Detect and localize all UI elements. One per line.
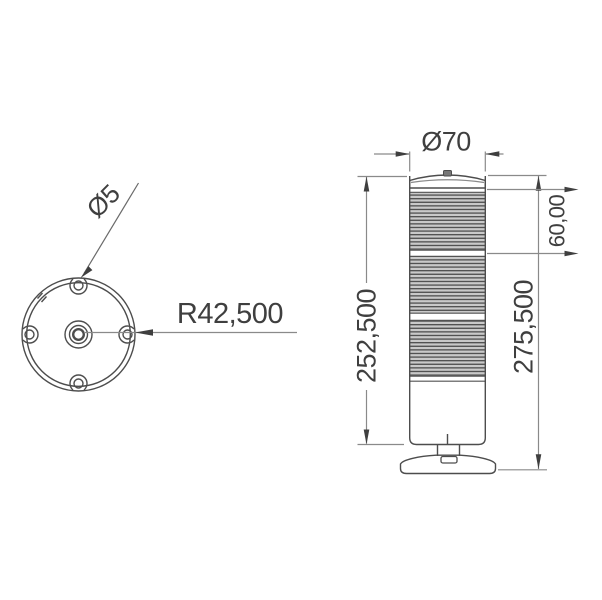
mounting-hole-bottom [70, 375, 87, 390]
dimension-arrow [485, 151, 499, 157]
dim-total-height: 275,500 [488, 176, 547, 470]
lens-segment-1 [410, 193, 486, 251]
flange-inner-circle [27, 283, 131, 387]
technical-drawing-canvas: Ø5 R42,500 [0, 0, 602, 600]
dim-mount-radius: R42,500 [84, 298, 297, 336]
dim-body-height: 252,500 [351, 177, 407, 445]
radius-arrow [135, 329, 153, 335]
lens-segment-2 [410, 257, 486, 314]
dim-diameter-70: Ø70 [374, 126, 504, 171]
dimension-arrow [565, 251, 579, 257]
dimension-arrow [364, 430, 370, 445]
hub-circle-inner [73, 329, 84, 340]
dimension-arrow [536, 176, 542, 191]
tower-stem [438, 445, 460, 457]
mounting-hole-top [70, 279, 87, 294]
base-tab [441, 457, 457, 464]
flange-outer-circle [22, 278, 135, 391]
front-view: Ø70 252,500 275,500 60,00 [351, 126, 578, 473]
total-height-label: 275,500 [508, 280, 538, 374]
dimension-arrow [536, 454, 542, 469]
module-height-label: 60,00 [545, 194, 570, 247]
dimension-arrow [396, 151, 410, 157]
top-view: Ø5 R42,500 [22, 179, 297, 391]
lens-segment-3 [410, 321, 486, 377]
hole-diameter-label: Ø5 [81, 179, 126, 224]
leader-arrow [81, 266, 93, 278]
mount-radius-label: R42,500 [177, 298, 283, 330]
cap-inner-line [411, 180, 484, 183]
body-height-label: 252,500 [351, 289, 381, 383]
center-hub [65, 321, 92, 348]
diameter-label: Ø70 [421, 126, 471, 156]
cap-nub [444, 171, 452, 177]
mounting-hole-right [119, 326, 134, 343]
dim-module-height: 60,00 [487, 187, 579, 257]
dim-hole-diameter: Ø5 [81, 179, 139, 278]
dimension-arrow [565, 187, 579, 193]
mounting-hole-left [23, 326, 38, 343]
dimension-arrow [364, 177, 370, 192]
signal-tower-drawing: Ø5 R42,500 [0, 0, 602, 600]
